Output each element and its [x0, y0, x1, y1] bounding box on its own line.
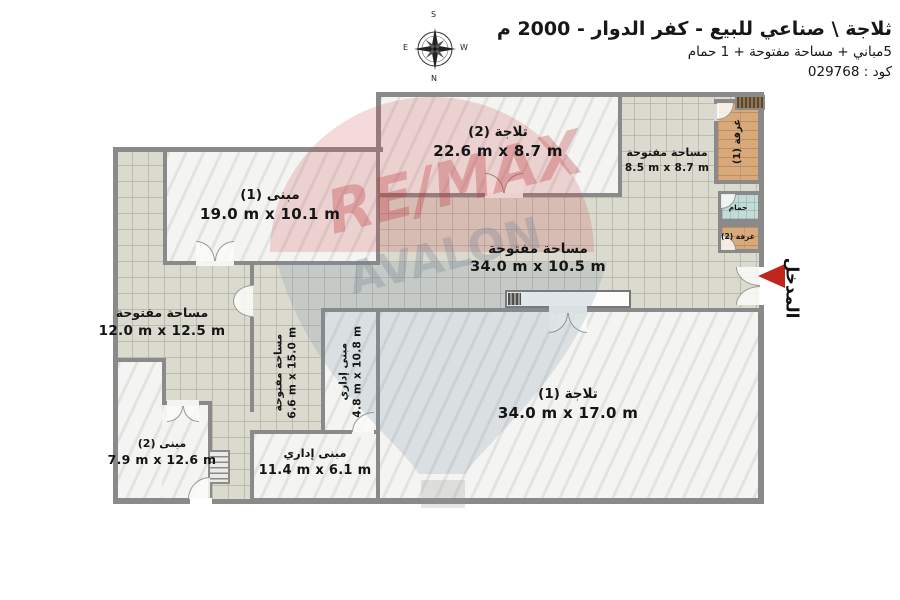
label-admin-large: مبنى إداري 11.4 m x 6.1 m [252, 438, 378, 488]
compass-top-label: S [431, 10, 436, 19]
compass-rose-icon: S N E W [402, 12, 468, 84]
label-fridge-1: تلاجة (1) 34.0 m x 17.0 m [468, 378, 668, 430]
outer-wall-top-right [376, 92, 764, 97]
label-room-1: غرفة (1) [714, 99, 762, 184]
label-building-1: مبنى (1) 19.0 m x 10.1 m [180, 180, 360, 230]
label-building-2: مبنى (2) 7.9 m x 12.6 m [98, 430, 226, 476]
outer-wall-top-left [113, 147, 383, 152]
outer-wall-step [376, 92, 381, 152]
compass-right-label: W [460, 43, 468, 52]
label-open-area-ne: مساحة مفتوحة 8.5 m x 8.7 m [620, 138, 714, 184]
dock-hatch-icon [508, 293, 521, 305]
entrance-label: المدخل [781, 258, 801, 319]
label-open-area-west: مساحة مفتوحة 12.0 m x 12.5 m [88, 298, 236, 348]
compass-left-label: E [403, 43, 408, 52]
label-room-2: غرفة (2) [718, 228, 758, 246]
label-fridge-2: تلاجة (2) 22.6 m x 8.7 m [408, 117, 588, 167]
label-bathroom: حمام [718, 199, 758, 217]
label-open-area-strip: مساحة مفتوحة 6.6 m x 15.0 m [250, 305, 322, 440]
label-open-area-mid: مساحة مفتوحة 34.0 m x 10.5 m [438, 235, 638, 283]
partition-wall-upper [250, 263, 254, 285]
building-2-notch-wall [162, 358, 166, 405]
compass-bottom-label: N [431, 74, 437, 83]
floorplan-canvas: ثلاجة \ صناعي للبيع - كفر الدوار - 2000 … [0, 0, 900, 600]
entrance-label-box: المدخل [768, 240, 814, 336]
outer-wall-right-lower [759, 305, 764, 504]
label-admin-small: مبنى إداري 4.8 m x 10.8 m [321, 308, 380, 436]
